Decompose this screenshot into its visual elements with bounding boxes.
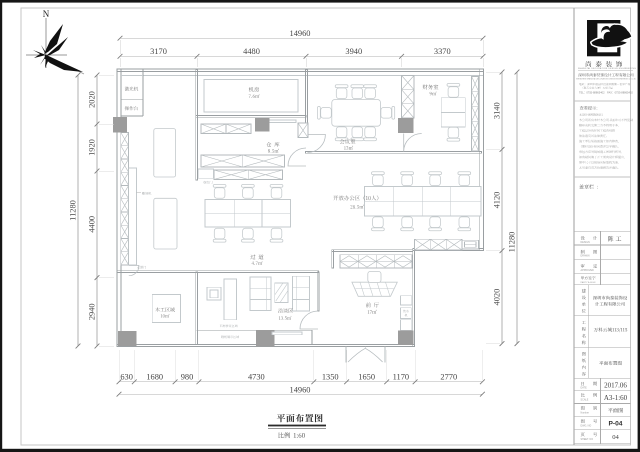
svg-text:4400: 4400: [88, 216, 97, 233]
svg-text:11280: 11280: [507, 232, 516, 253]
svg-text:SHENZHEN SHANGTAI DECORATION D: SHENZHEN SHANGTAI DECORATION DESIGN ENGI…: [576, 77, 636, 80]
svg-text:A3-1:60: A3-1:60: [604, 394, 628, 402]
svg-text:2020: 2020: [88, 91, 97, 108]
svg-text:2017.06: 2017.06: [604, 382, 627, 390]
svg-text:DESIGN: DESIGN: [581, 241, 590, 244]
svg-text:APPROVED: APPROVED: [581, 269, 595, 272]
svg-text:3140: 3140: [492, 102, 501, 119]
svg-text:TEL：0755-88865402 FAX：0755-888: TEL：0755-88865402 FAX：0755-88865402: [579, 90, 633, 94]
svg-text:1680: 1680: [146, 372, 163, 381]
svg-text:P-04: P-04: [609, 420, 623, 427]
svg-text:04: 04: [612, 434, 619, 441]
svg-text:980: 980: [181, 372, 194, 381]
svg-text:1650: 1650: [358, 372, 375, 381]
svg-text:DWG. NO: DWG. NO: [581, 424, 592, 427]
svg-text:DATE: DATE: [581, 387, 588, 390]
svg-text:1170: 1170: [393, 372, 409, 381]
svg-text:4020: 4020: [492, 289, 501, 306]
svg-text:Number: Number: [581, 411, 590, 414]
svg-text:SHANGTAI DECORATION DESIGN ENG: SHANGTAI DECORATION DESIGN ENGINEERING: [578, 67, 636, 70]
svg-text:DRAWN: DRAWN: [581, 255, 590, 258]
svg-text:11280: 11280: [69, 200, 78, 221]
svg-text:2770: 2770: [440, 372, 457, 381]
svg-text:1920: 1920: [88, 139, 97, 156]
svg-text:PARTY A SIGN: PARTY A SIGN: [581, 281, 596, 284]
svg-text:14960: 14960: [290, 385, 311, 394]
svg-text:2940: 2940: [88, 303, 97, 320]
svg-text:1350: 1350: [322, 372, 339, 381]
svg-text:4730: 4730: [248, 372, 265, 381]
svg-text:3170: 3170: [150, 47, 167, 56]
svg-text:14960: 14960: [290, 29, 311, 38]
svg-text:4120: 4120: [492, 192, 501, 209]
svg-text:630: 630: [120, 372, 133, 381]
svg-text:SCALE: SCALE: [581, 398, 589, 401]
svg-text:4480: 4480: [243, 47, 260, 56]
svg-text:3370: 3370: [434, 47, 451, 56]
svg-text:N: N: [43, 9, 50, 19]
svg-text:SHEET. NO: SHEET. NO: [581, 438, 594, 441]
svg-text:3940: 3940: [345, 47, 362, 56]
